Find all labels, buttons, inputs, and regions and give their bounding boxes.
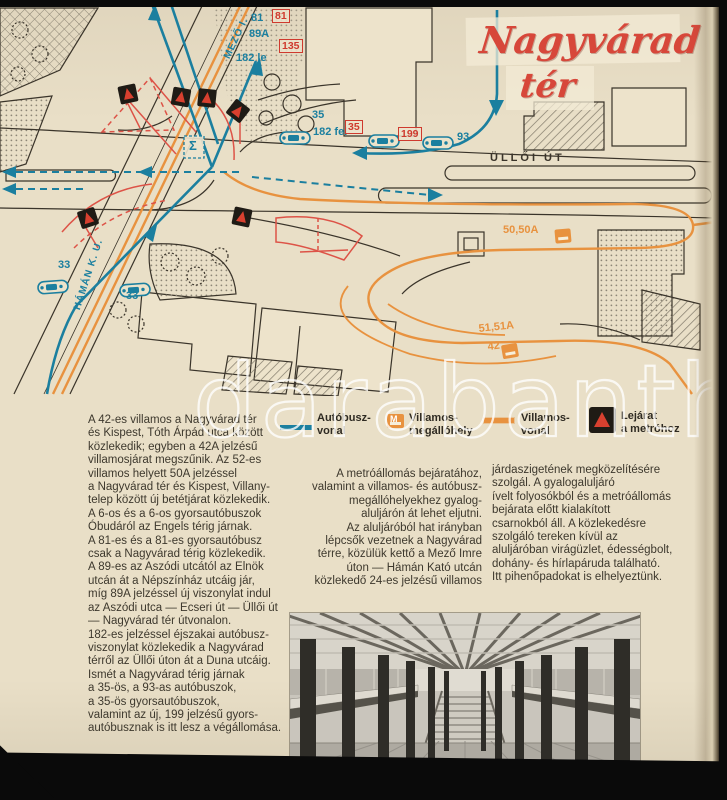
tram-stop-icon xyxy=(554,228,571,243)
page-title-line1: Nagyvárad xyxy=(478,18,703,62)
scan-edge-top xyxy=(0,0,727,7)
bus-stop-icon xyxy=(280,132,310,144)
route-label-182-fel: 182 fel xyxy=(313,126,347,138)
metro-entrance-icon xyxy=(197,88,217,108)
bus-line-swatch xyxy=(280,425,312,430)
scan-edge-bottom xyxy=(0,752,727,800)
tram-line-swatch xyxy=(484,418,514,423)
metro-exit-icon xyxy=(589,407,616,433)
route-label-35: 35 xyxy=(312,109,324,121)
legend-bus-line-label: Autóbusz- vonal xyxy=(317,412,371,438)
legend-tram-line-label: Villamos- vonal xyxy=(521,412,570,438)
route-label-93: 93 xyxy=(457,131,469,143)
legend-metro-exit-label: Lejárat a metróhoz xyxy=(621,410,680,436)
route-label-135-gyors: 135 xyxy=(279,39,303,53)
metro-entrance-icon xyxy=(231,206,252,227)
tram-stop-icon xyxy=(501,343,519,360)
bus-stop-icon xyxy=(369,135,399,147)
route-label-33-a: 33 xyxy=(58,259,70,271)
body-column-right: járdaszigetének megközelítésére szolgál.… xyxy=(492,464,697,585)
body-column-left: A 42-es villamos a Nagyvárad tér és Kisp… xyxy=(88,414,310,736)
page-fold xyxy=(694,0,720,800)
tram-stop-icon: M xyxy=(387,414,404,428)
route-label-42: 42 xyxy=(487,340,500,353)
route-label-81: 81 xyxy=(251,12,263,24)
bus-stop-icon xyxy=(38,280,69,294)
route-label-89a: 89A xyxy=(249,28,269,40)
route-label-33-b: 33 xyxy=(126,290,138,302)
page-title-line2: tér xyxy=(518,66,577,106)
bus-stop-icon xyxy=(423,137,453,149)
route-label-182-le: 182 le xyxy=(236,52,267,64)
station-sigma-glyph: Σ xyxy=(189,138,197,153)
street-label-ulloi-ut: ÜLLŐI ÚT xyxy=(490,152,565,164)
metro-entrance-icon xyxy=(171,87,192,108)
route-label-50-50a: 50,50A xyxy=(503,224,538,236)
route-label-81-gyors: 81 xyxy=(272,9,290,23)
metro-entrance-icon xyxy=(117,83,138,104)
route-label-199-gyors: 199 xyxy=(398,127,422,141)
scanned-brochure-page: MEZŐ I. HÁMÁN K. U. ÜLLŐI ÚT 81 81 89A 1… xyxy=(0,0,727,800)
legend-tram-stop-label: Villamos- megállóhely xyxy=(409,412,473,438)
route-label-35-gyors: 35 xyxy=(345,120,363,134)
scan-edge-right xyxy=(719,0,727,800)
body-column-middle: A metróállomás bejáratához, valamint a v… xyxy=(292,468,482,589)
metro-entrance-icons xyxy=(77,83,253,229)
